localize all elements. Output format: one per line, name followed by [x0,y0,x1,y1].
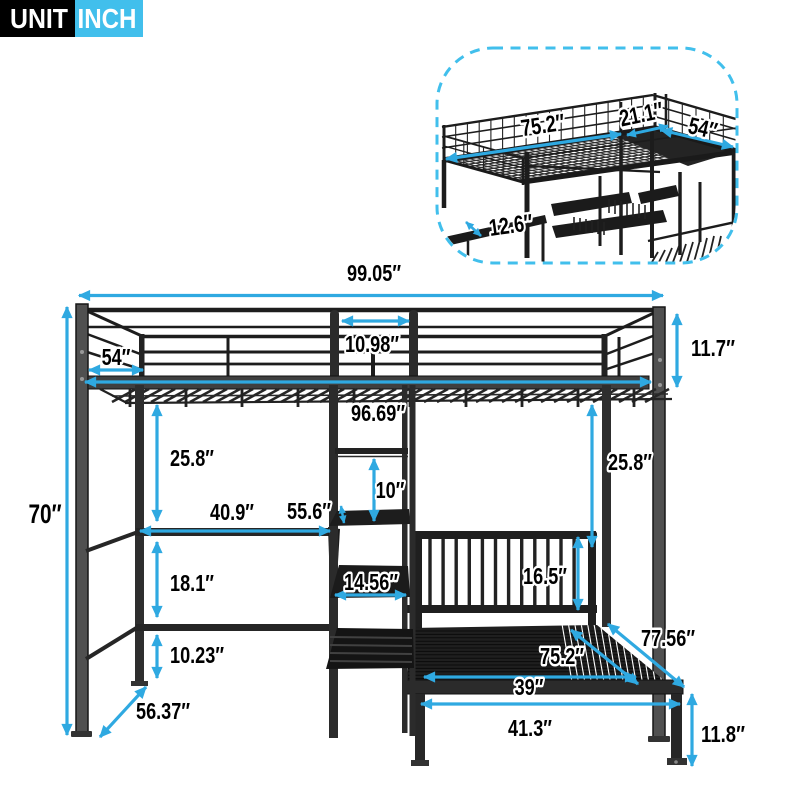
svg-text:41.3″: 41.3″ [508,715,552,741]
svg-text:UNIT: UNIT [10,3,68,34]
svg-text:18.1″: 18.1″ [170,570,214,596]
svg-text:16.5″: 16.5″ [523,563,567,589]
svg-text:INCH: INCH [78,3,137,34]
svg-text:56.37″: 56.37″ [136,698,190,724]
svg-text:10.23″: 10.23″ [170,642,224,668]
svg-text:11.8″: 11.8″ [701,721,745,747]
svg-text:96.69″: 96.69″ [351,400,405,426]
svg-text:25.8″: 25.8″ [608,449,652,475]
svg-text:39″: 39″ [515,674,544,700]
svg-text:11.7″: 11.7″ [691,335,735,361]
svg-text:54″: 54″ [102,344,131,370]
svg-text:99.05″: 99.05″ [347,260,401,286]
svg-text:77.56″: 77.56″ [641,625,695,651]
svg-text:10″: 10″ [376,477,405,503]
svg-text:10.98″: 10.98″ [345,331,399,357]
svg-text:25.8″: 25.8″ [170,445,214,471]
svg-text:75.2″: 75.2″ [540,643,584,669]
svg-text:55.6″: 55.6″ [287,498,331,524]
svg-text:70″: 70″ [28,499,61,529]
svg-text:14.56″: 14.56″ [344,569,398,595]
svg-text:40.9″: 40.9″ [210,499,254,525]
